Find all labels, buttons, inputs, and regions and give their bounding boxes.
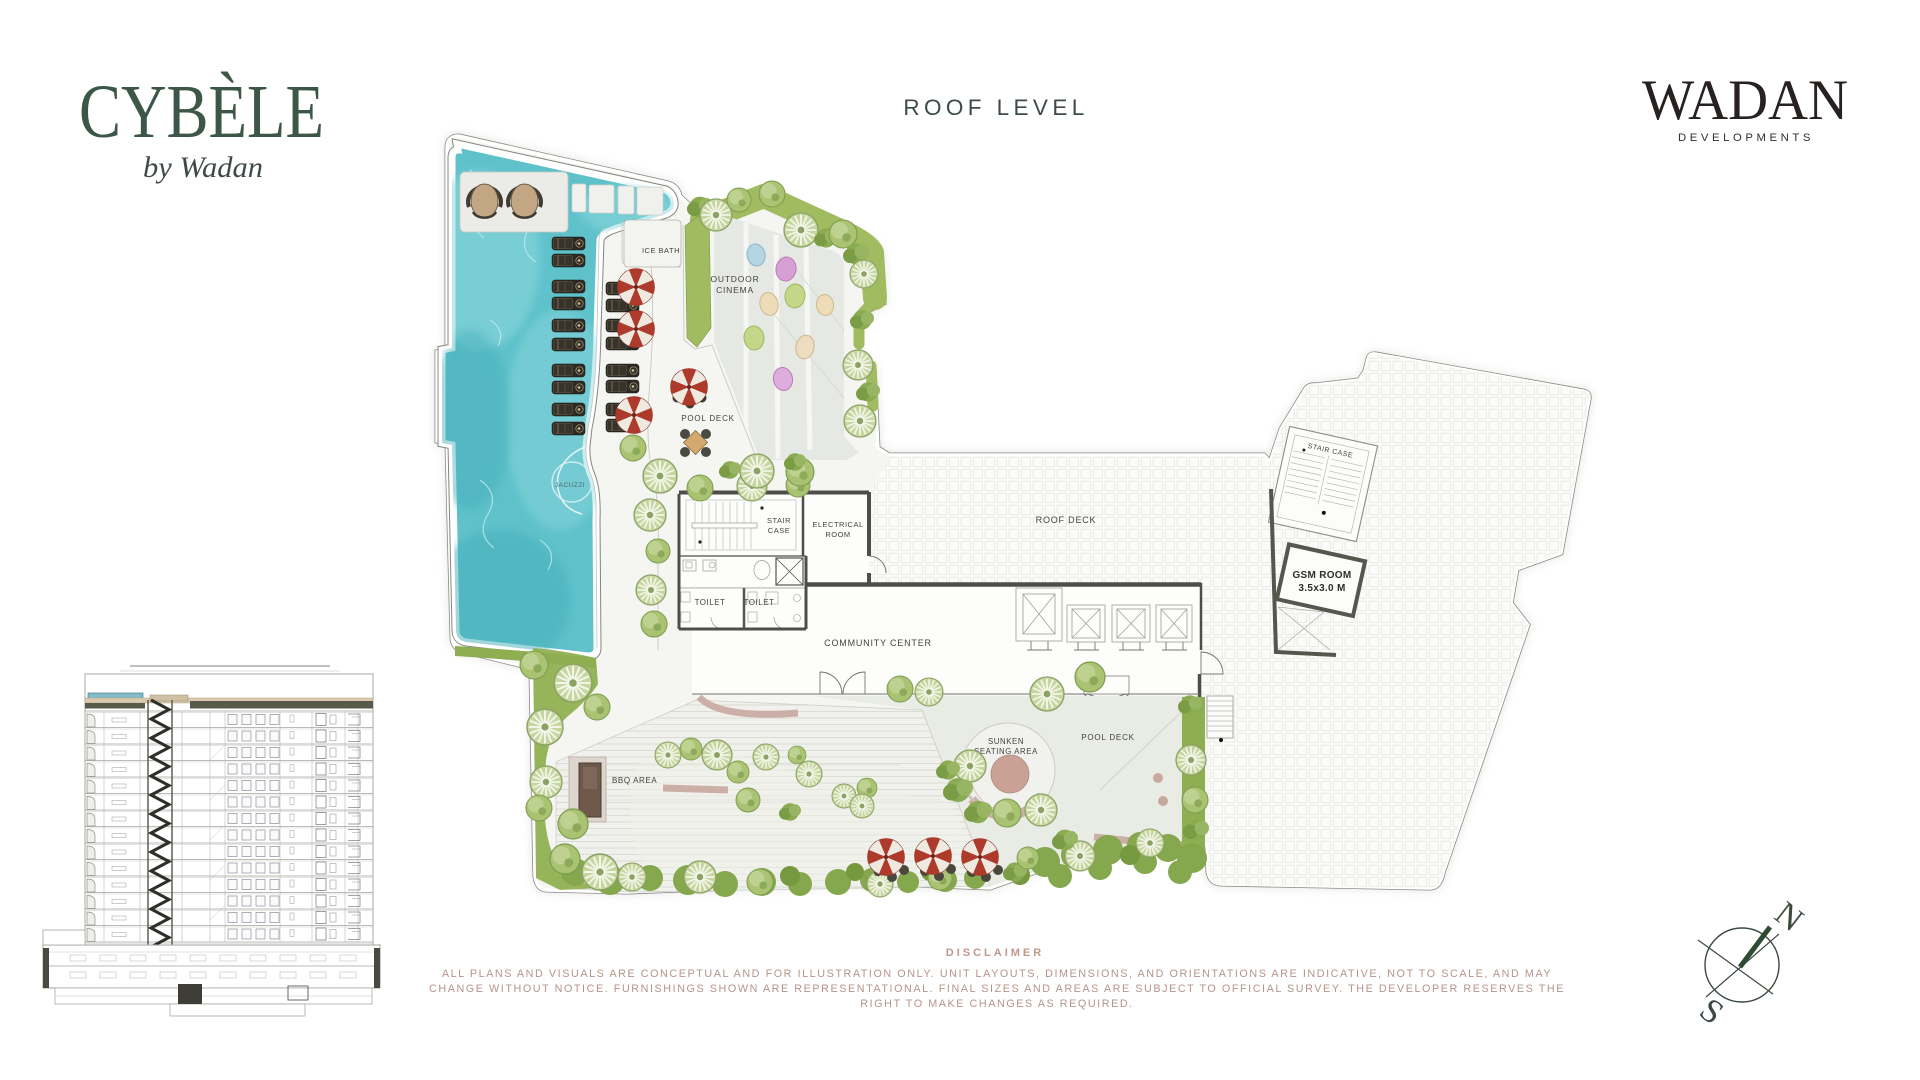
svg-text:POOL DECK: POOL DECK: [681, 414, 735, 423]
svg-text:CHANGE WITHOUT NOTICE. FURNISH: CHANGE WITHOUT NOTICE. FURNISHINGS SHOWN…: [429, 983, 1565, 995]
svg-text:OUTDOOR: OUTDOOR: [710, 274, 759, 284]
svg-text:SEATING AREA: SEATING AREA: [974, 747, 1038, 756]
svg-text:ALL PLANS AND VISUALS ARE CONC: ALL PLANS AND VISUALS ARE CONCEPTUAL AND…: [442, 968, 1552, 980]
svg-text:ELECTRICAL: ELECTRICAL: [812, 520, 863, 529]
svg-text:STAIR: STAIR: [767, 516, 791, 525]
svg-text:3.5x3.0 M: 3.5x3.0 M: [1298, 583, 1345, 594]
svg-text:RIGHT TO MAKE CHANGES AS REQUI: RIGHT TO MAKE CHANGES AS REQUIRED.: [860, 998, 1133, 1010]
svg-text:TOILET: TOILET: [744, 598, 775, 607]
svg-text:JACUZZI: JACUZZI: [555, 482, 585, 489]
svg-text:WADAN: WADAN: [1642, 69, 1848, 132]
svg-text:DISCLAIMER: DISCLAIMER: [946, 947, 1044, 959]
svg-text:COMMUNITY CENTER: COMMUNITY CENTER: [824, 638, 932, 648]
svg-text:CASE: CASE: [768, 526, 790, 535]
svg-text:CINEMA: CINEMA: [716, 285, 754, 295]
svg-text:SUNKEN: SUNKEN: [988, 737, 1024, 746]
svg-text:ICE BATH: ICE BATH: [642, 246, 680, 255]
svg-text:DEVELOPMENTS: DEVELOPMENTS: [1678, 132, 1814, 144]
svg-text:GSM ROOM: GSM ROOM: [1292, 570, 1351, 581]
svg-text:TOILET: TOILET: [695, 598, 726, 607]
svg-text:ROOM: ROOM: [825, 530, 850, 539]
svg-text:by Wadan: by Wadan: [143, 151, 263, 184]
svg-text:BBQ AREA: BBQ AREA: [612, 776, 657, 785]
svg-text:CYBÈLE: CYBÈLE: [79, 70, 324, 154]
svg-text:POOL DECK: POOL DECK: [1081, 733, 1135, 742]
svg-text:ROOF LEVEL: ROOF LEVEL: [903, 95, 1088, 120]
svg-text:ROOF DECK: ROOF DECK: [1036, 515, 1097, 525]
